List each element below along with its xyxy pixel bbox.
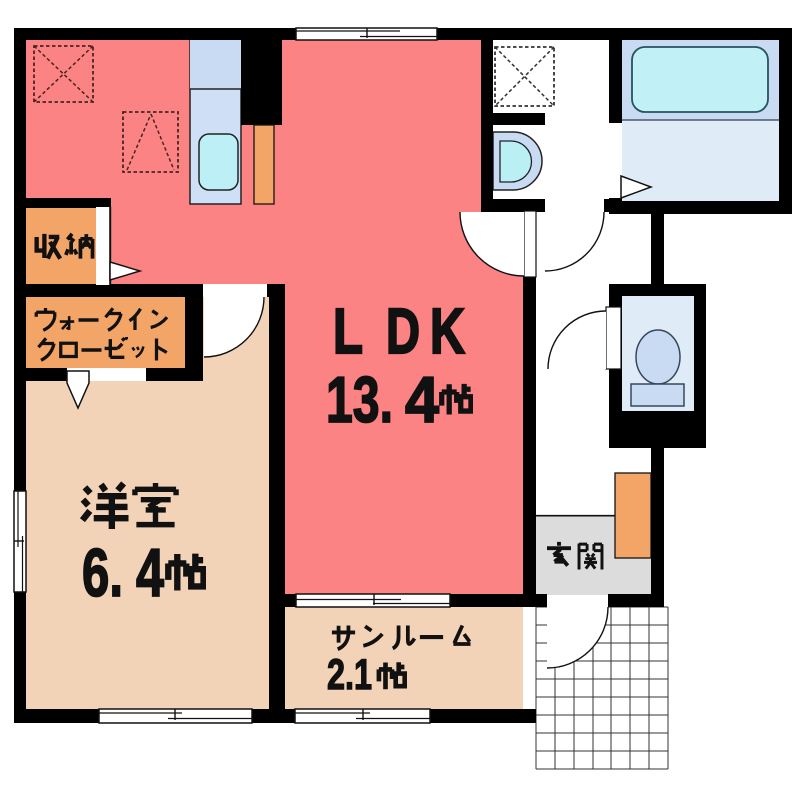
svg-text:4: 4 xyxy=(136,535,164,611)
svg-text:K: K xyxy=(430,295,465,367)
svg-text:4: 4 xyxy=(405,363,439,436)
svg-text:13.: 13. xyxy=(326,363,393,436)
svg-text:2.1: 2.1 xyxy=(327,651,372,699)
svg-text:D: D xyxy=(386,295,420,367)
svg-text:6.: 6. xyxy=(82,535,123,611)
svg-text:L: L xyxy=(333,295,363,367)
